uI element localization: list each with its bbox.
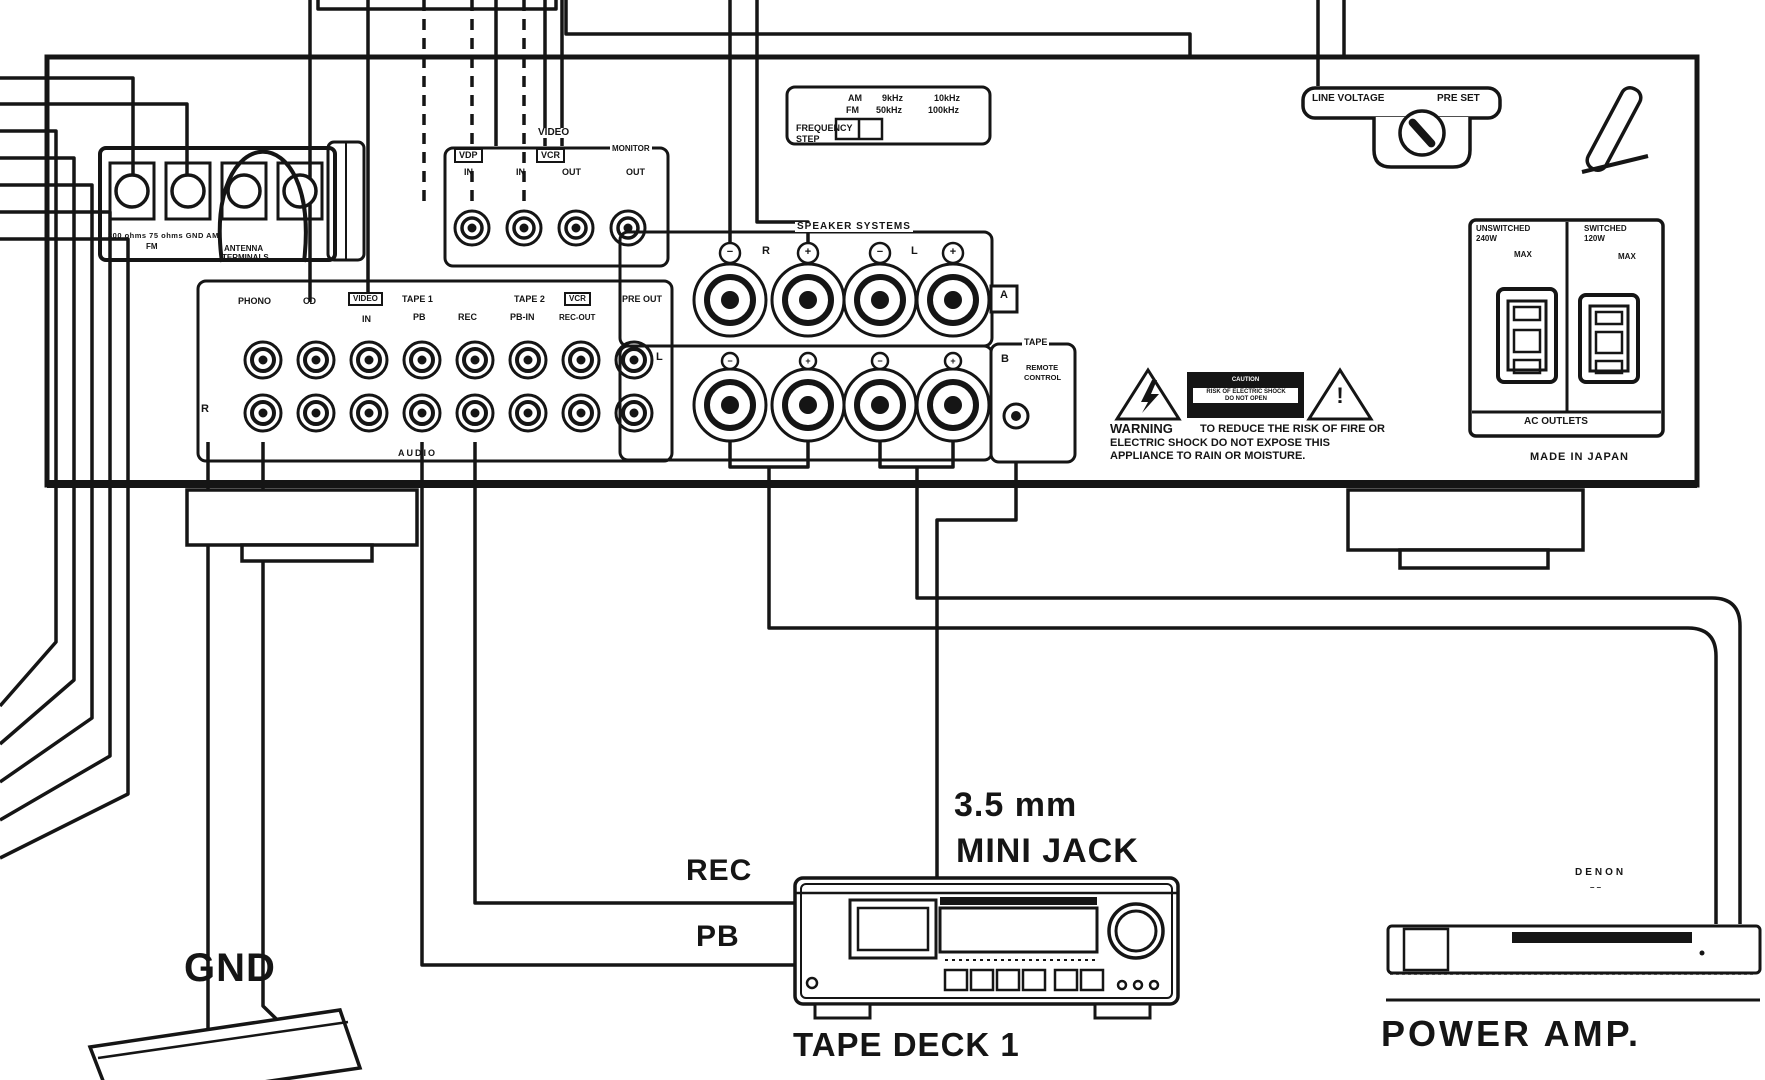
freq-9khz-label: 9kHz xyxy=(882,94,903,103)
audio-r-label: R xyxy=(201,404,209,415)
control-label: CONTROL xyxy=(1024,374,1061,382)
display-window xyxy=(940,908,1097,952)
speaker-b-label: B xyxy=(997,354,1013,365)
wire xyxy=(0,104,187,176)
diagram-artwork xyxy=(0,0,1765,1080)
video-box-label: VIDEO xyxy=(348,292,383,306)
speaker-b-bracket xyxy=(730,442,808,467)
video-section-header: VIDEO xyxy=(536,128,571,138)
freq-am-label: AM xyxy=(848,94,862,103)
warning-title: WARNING xyxy=(1110,422,1173,435)
chassis-feet xyxy=(187,490,1583,568)
brand-logo: DENON xyxy=(1575,868,1626,878)
antenna-screw-terminal xyxy=(116,175,148,207)
vdp-box-label: VDP xyxy=(454,148,483,163)
plus-mark: + xyxy=(943,247,963,258)
vdp-in-jack xyxy=(455,211,489,245)
tape1-pb-l-jack xyxy=(404,342,440,378)
speaker-b-terminal xyxy=(694,369,766,441)
phono-label: PHONO xyxy=(238,297,271,306)
power-amp-caption: POWER AMP. xyxy=(1381,1016,1641,1052)
warning-line2: ELECTRIC SHOCK DO NOT EXPOSE THIS xyxy=(1110,438,1330,449)
deck-foot xyxy=(1095,1004,1150,1018)
wire xyxy=(0,78,133,176)
frequency-label: FREQUENCY xyxy=(796,124,853,133)
switched-label: SWITCHED xyxy=(1584,225,1627,233)
vcr-in-jack xyxy=(507,211,541,245)
unswitched-label: UNSWITCHED xyxy=(1476,225,1530,233)
exclamation-mark: ! xyxy=(1332,385,1348,407)
freq-fm-label: FM xyxy=(846,106,859,115)
switched-max-label: MAX xyxy=(1618,253,1636,261)
speaker-systems-header: SPEAKER SYSTEMS xyxy=(795,222,913,232)
tape1-rec-label: REC xyxy=(458,313,477,322)
switched-outlet xyxy=(1580,295,1638,382)
speaker-a-terminal xyxy=(694,264,766,336)
cd-l-jack xyxy=(298,342,334,378)
antenna-label: ANTENNA xyxy=(224,245,263,253)
unswitched-max-label: MAX xyxy=(1514,251,1532,259)
tape2-label: TAPE 2 xyxy=(514,295,545,304)
receiver-rear-panel-connection-diagram: 300 ohms 75 ohms GND AM FM ANTENNA TERMI… xyxy=(0,0,1765,1080)
vcr-in-label: IN xyxy=(516,168,525,177)
phono-l-jack xyxy=(245,342,281,378)
unswitched-outlet xyxy=(1498,289,1556,382)
minus-mark: − xyxy=(722,357,738,366)
pre-set-label: PRE SET xyxy=(1437,94,1480,104)
video-in-r-jack xyxy=(351,395,387,431)
unswitched-watts-label: 240W xyxy=(1476,235,1497,243)
monitor-label: MONITOR xyxy=(610,145,652,153)
right-foot xyxy=(1348,490,1583,550)
minus-mark: − xyxy=(870,247,890,258)
tape-remote-tape-label: TAPE xyxy=(1022,338,1049,347)
speaker-b-terminal xyxy=(917,369,989,441)
wire xyxy=(566,0,1190,57)
speaker-b-bracket xyxy=(880,442,953,467)
phono-r-jack xyxy=(245,395,281,431)
made-in-japan-label: MADE IN JAPAN xyxy=(1530,452,1629,463)
switched-watts-label: 120W xyxy=(1584,235,1605,243)
video-in-label: IN xyxy=(362,315,371,324)
preout-l-label: L xyxy=(656,352,663,363)
left-foot xyxy=(187,490,417,545)
right-foot-pad xyxy=(1400,550,1548,568)
warning-line1: TO REDUCE THE RISK OF FIRE OR xyxy=(1200,424,1385,435)
speaker-a-label: A xyxy=(996,290,1012,301)
caution-label: CAUTION xyxy=(1190,377,1301,383)
tape1-label: TAPE 1 xyxy=(402,295,433,304)
do-not-open-label: DO NOT OPEN xyxy=(1194,396,1298,402)
speaker-r-label: R xyxy=(762,246,770,257)
tape1-rec-l-jack xyxy=(457,342,493,378)
ac-outlets-label: AC OUTLETS xyxy=(1524,417,1588,427)
vcr-audio-box-label: VCR xyxy=(564,292,591,306)
tape-deck-caption: TAPE DECK 1 xyxy=(793,1028,1020,1061)
wire xyxy=(318,0,556,9)
warning-line3: APPLIANCE TO RAIN OR MOISTURE. xyxy=(1110,451,1305,462)
deck-foot xyxy=(815,1004,870,1018)
plus-mark: + xyxy=(945,357,961,366)
speaker-a-terminal xyxy=(844,264,916,336)
antenna-fm-label: FM xyxy=(146,243,158,251)
gnd-callout: GND xyxy=(184,948,276,988)
monitor-out-jack xyxy=(611,211,645,245)
minus-mark: − xyxy=(720,247,740,258)
power-switch-lever xyxy=(1582,85,1648,174)
cd-label: CD xyxy=(303,297,316,306)
cd-r-jack xyxy=(298,395,334,431)
antenna-screw-terminal xyxy=(228,175,260,207)
risk-label: RISK OF ELECTRIC SHOCK xyxy=(1194,389,1298,395)
vcr-recout-r-jack xyxy=(563,395,599,431)
speaker-l-label: L xyxy=(911,246,918,257)
vcr-out-jack xyxy=(559,211,593,245)
monitor-out-label: OUT xyxy=(626,168,645,177)
antenna-terminals-label: TERMINALS xyxy=(222,254,269,262)
rec-callout: REC xyxy=(686,856,752,886)
video-jack-group xyxy=(445,148,668,266)
line-voltage-label: LINE VOLTAGE xyxy=(1312,94,1384,104)
tape1-rec-r-jack xyxy=(457,395,493,431)
step-label: STEP xyxy=(796,135,820,144)
freq-50khz-label: 50kHz xyxy=(876,106,902,115)
audio-section-label: AUDIO xyxy=(398,449,437,458)
vcr-recout-l-jack xyxy=(563,342,599,378)
tape1-pb-label: PB xyxy=(413,313,426,322)
tape2-pbin-l-jack xyxy=(510,342,546,378)
remote-label: REMOTE xyxy=(1026,364,1058,372)
vdp-in-label: IN xyxy=(464,168,473,177)
tape2-pbin-r-jack xyxy=(510,395,546,431)
left-foot-pad xyxy=(242,545,372,561)
tape1-pb-r-jack xyxy=(404,395,440,431)
plus-mark: + xyxy=(800,357,816,366)
mini-jack-callout-line1: 3.5 mm xyxy=(954,788,1077,822)
power-amp-drawing xyxy=(1386,926,1760,1000)
speaker-b-terminal xyxy=(772,369,844,441)
mini-jack-callout-line2: MINI JACK xyxy=(956,834,1139,868)
turntable-sketch xyxy=(90,1010,360,1080)
speaker-b-terminal xyxy=(844,369,916,441)
speaker-a-terminal xyxy=(917,264,989,336)
video-in-l-jack xyxy=(351,342,387,378)
antenna-impedance-label: 300 ohms 75 ohms GND AM xyxy=(108,232,219,240)
plus-mark: + xyxy=(798,247,818,258)
amp-tray xyxy=(1512,932,1692,943)
speaker-a-terminal xyxy=(772,264,844,336)
wire xyxy=(0,158,74,744)
freq-10khz-label: 10kHz xyxy=(934,94,960,103)
brand-logo-dash: – – xyxy=(1590,884,1601,892)
rec-wire-to-deck xyxy=(475,442,795,903)
antenna-screw-terminal xyxy=(172,175,204,207)
audio-jack-field xyxy=(198,281,672,461)
vcr-box-label: VCR xyxy=(536,148,565,163)
preout-label: PRE OUT xyxy=(622,295,662,304)
vcr-out-label: OUT xyxy=(562,168,581,177)
tape2-pbin-label: PB-IN xyxy=(510,313,535,322)
tape-deck-drawing xyxy=(795,878,1178,1018)
minus-mark: − xyxy=(872,357,888,366)
vcr-recout-label: REC-OUT xyxy=(559,314,595,322)
freq-100khz-label: 100kHz xyxy=(928,106,959,115)
speaker-terminal-block xyxy=(620,232,1017,460)
pb-callout: PB xyxy=(696,922,740,952)
